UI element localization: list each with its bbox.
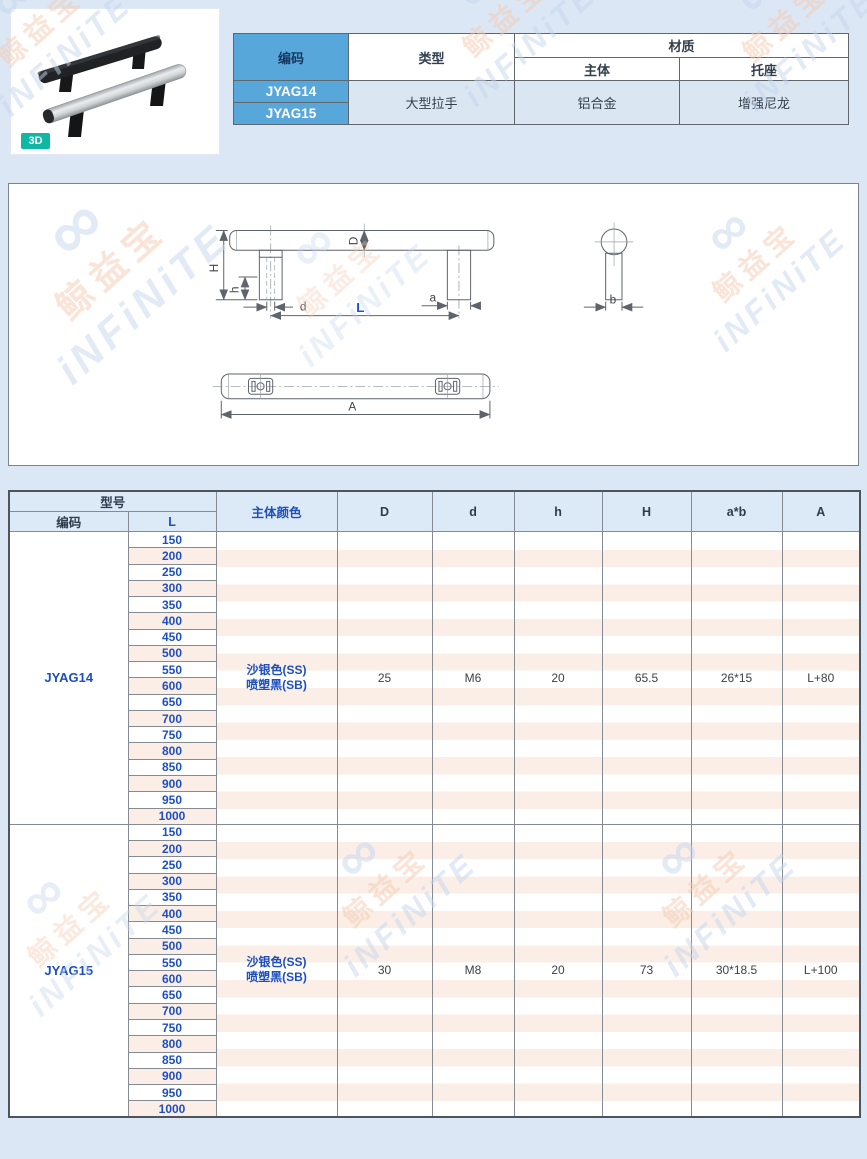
3d-view-badge[interactable]: 3D [21,133,50,149]
color-option: 沙银色(SS) [217,955,337,970]
color-option: 沙银色(SS) [217,663,337,678]
length-cell: 450 [128,922,216,938]
type-header: 类型 [349,34,515,81]
body-material-value: 铝合金 [515,81,680,125]
catalog-page: ∞ 鲸益宝 iNFiNiTE ∞ 鲸益宝 iNFiNiTE ∞ 鲸益宝 iNFi… [0,0,867,1159]
length-cell: 550 [128,954,216,970]
bracket-material-value: 增强尼龙 [680,81,849,125]
length-cell: 500 [128,645,216,661]
length-cell: 500 [128,938,216,954]
color-cell: 沙银色(SS) 喷塑黑(SB) [216,532,337,825]
length-cell: 1000 [128,1101,216,1117]
block-jyag14: JYAG14 150 沙银色(SS) 喷塑黑(SB) 25 M6 20 65.5… [9,532,860,825]
length-cell: 450 [128,629,216,645]
length-cell: 850 [128,759,216,775]
length-cell: 300 [128,580,216,596]
length-cell: 900 [128,775,216,791]
value-D: 25 [337,532,432,825]
col-header-ab: a*b [691,491,782,532]
model-header: 型号 [9,491,216,512]
length-cell: 200 [128,548,216,564]
length-subheader: L [128,512,216,532]
value-H: 65.5 [602,532,691,825]
value-d: M8 [432,824,514,1117]
dim-label-a: a [430,291,437,305]
product-code: JYAG15 [234,103,349,125]
length-cell: 850 [128,1052,216,1068]
col-header-H: H [602,491,691,532]
length-cell: 550 [128,662,216,678]
dim-label-D: D [346,237,360,246]
length-cell: 200 [128,841,216,857]
value-h: 20 [514,532,602,825]
color-cell: 沙银色(SS) 喷塑黑(SB) [216,824,337,1117]
material-body-header: 主体 [515,58,680,81]
dim-label-h: h [228,287,242,294]
length-cell: 150 [128,824,216,840]
material-bracket-header: 托座 [680,58,849,81]
length-cell: 650 [128,694,216,710]
length-cell: 800 [128,1036,216,1052]
value-H: 73 [602,824,691,1117]
value-A: L+80 [782,532,860,825]
code-subheader: 编码 [9,512,128,532]
code-header: 编码 [234,34,349,81]
length-cell: 400 [128,906,216,922]
col-header-d: d [432,491,514,532]
length-cell: 350 [128,889,216,905]
value-ab: 26*15 [691,532,782,825]
product-info-table: 编码 类型 材质 主体 托座 JYAG14 大型拉手 铝合金 增强尼龙 JYAG… [233,33,849,125]
dim-label-L: L [356,300,364,315]
col-header-A: A [782,491,860,532]
value-A: L+100 [782,824,860,1117]
length-cell: 300 [128,873,216,889]
value-h: 20 [514,824,602,1117]
length-cell: 750 [128,1019,216,1035]
color-option: 喷塑黑(SB) [217,678,337,693]
length-cell: 700 [128,710,216,726]
length-cell: 700 [128,1003,216,1019]
technical-drawing: H h D d L a [8,183,859,466]
length-cell: 400 [128,613,216,629]
length-cell: 350 [128,597,216,613]
spec-code: JYAG14 [9,532,128,825]
value-d: M6 [432,532,514,825]
length-cell: 250 [128,857,216,873]
spec-code: JYAG15 [9,824,128,1117]
material-header: 材质 [515,34,849,58]
length-cell: 750 [128,727,216,743]
product-code: JYAG14 [234,81,349,103]
dim-label-d: d [300,300,307,314]
length-cell: 800 [128,743,216,759]
dim-label-H: H [207,264,221,273]
dimension-drawing-image: H h D d L a [9,184,857,464]
length-cell: 650 [128,987,216,1003]
col-header-h: h [514,491,602,532]
length-cell: 1000 [128,808,216,824]
length-cell: 600 [128,678,216,694]
length-cell: 150 [128,532,216,548]
length-cell: 250 [128,564,216,580]
col-header-D: D [337,491,432,532]
dim-label-A: A [348,400,356,414]
value-ab: 30*18.5 [691,824,782,1117]
color-header: 主体颜色 [216,491,337,532]
product-photo: 3D [10,8,220,155]
color-option: 喷塑黑(SB) [217,970,337,985]
dim-label-b: b [610,293,617,307]
block-jyag15: JYAG15 150 沙银色(SS) 喷塑黑(SB) 30 M8 20 73 3… [9,824,860,1117]
type-value: 大型拉手 [349,81,515,125]
length-cell: 900 [128,1068,216,1084]
length-cell: 950 [128,1085,216,1101]
spec-table: 型号 主体颜色 D d h H a*b A 编码 L JYAG14 150 沙银… [8,490,861,1118]
value-D: 30 [337,824,432,1117]
length-cell: 600 [128,971,216,987]
length-cell: 950 [128,792,216,808]
